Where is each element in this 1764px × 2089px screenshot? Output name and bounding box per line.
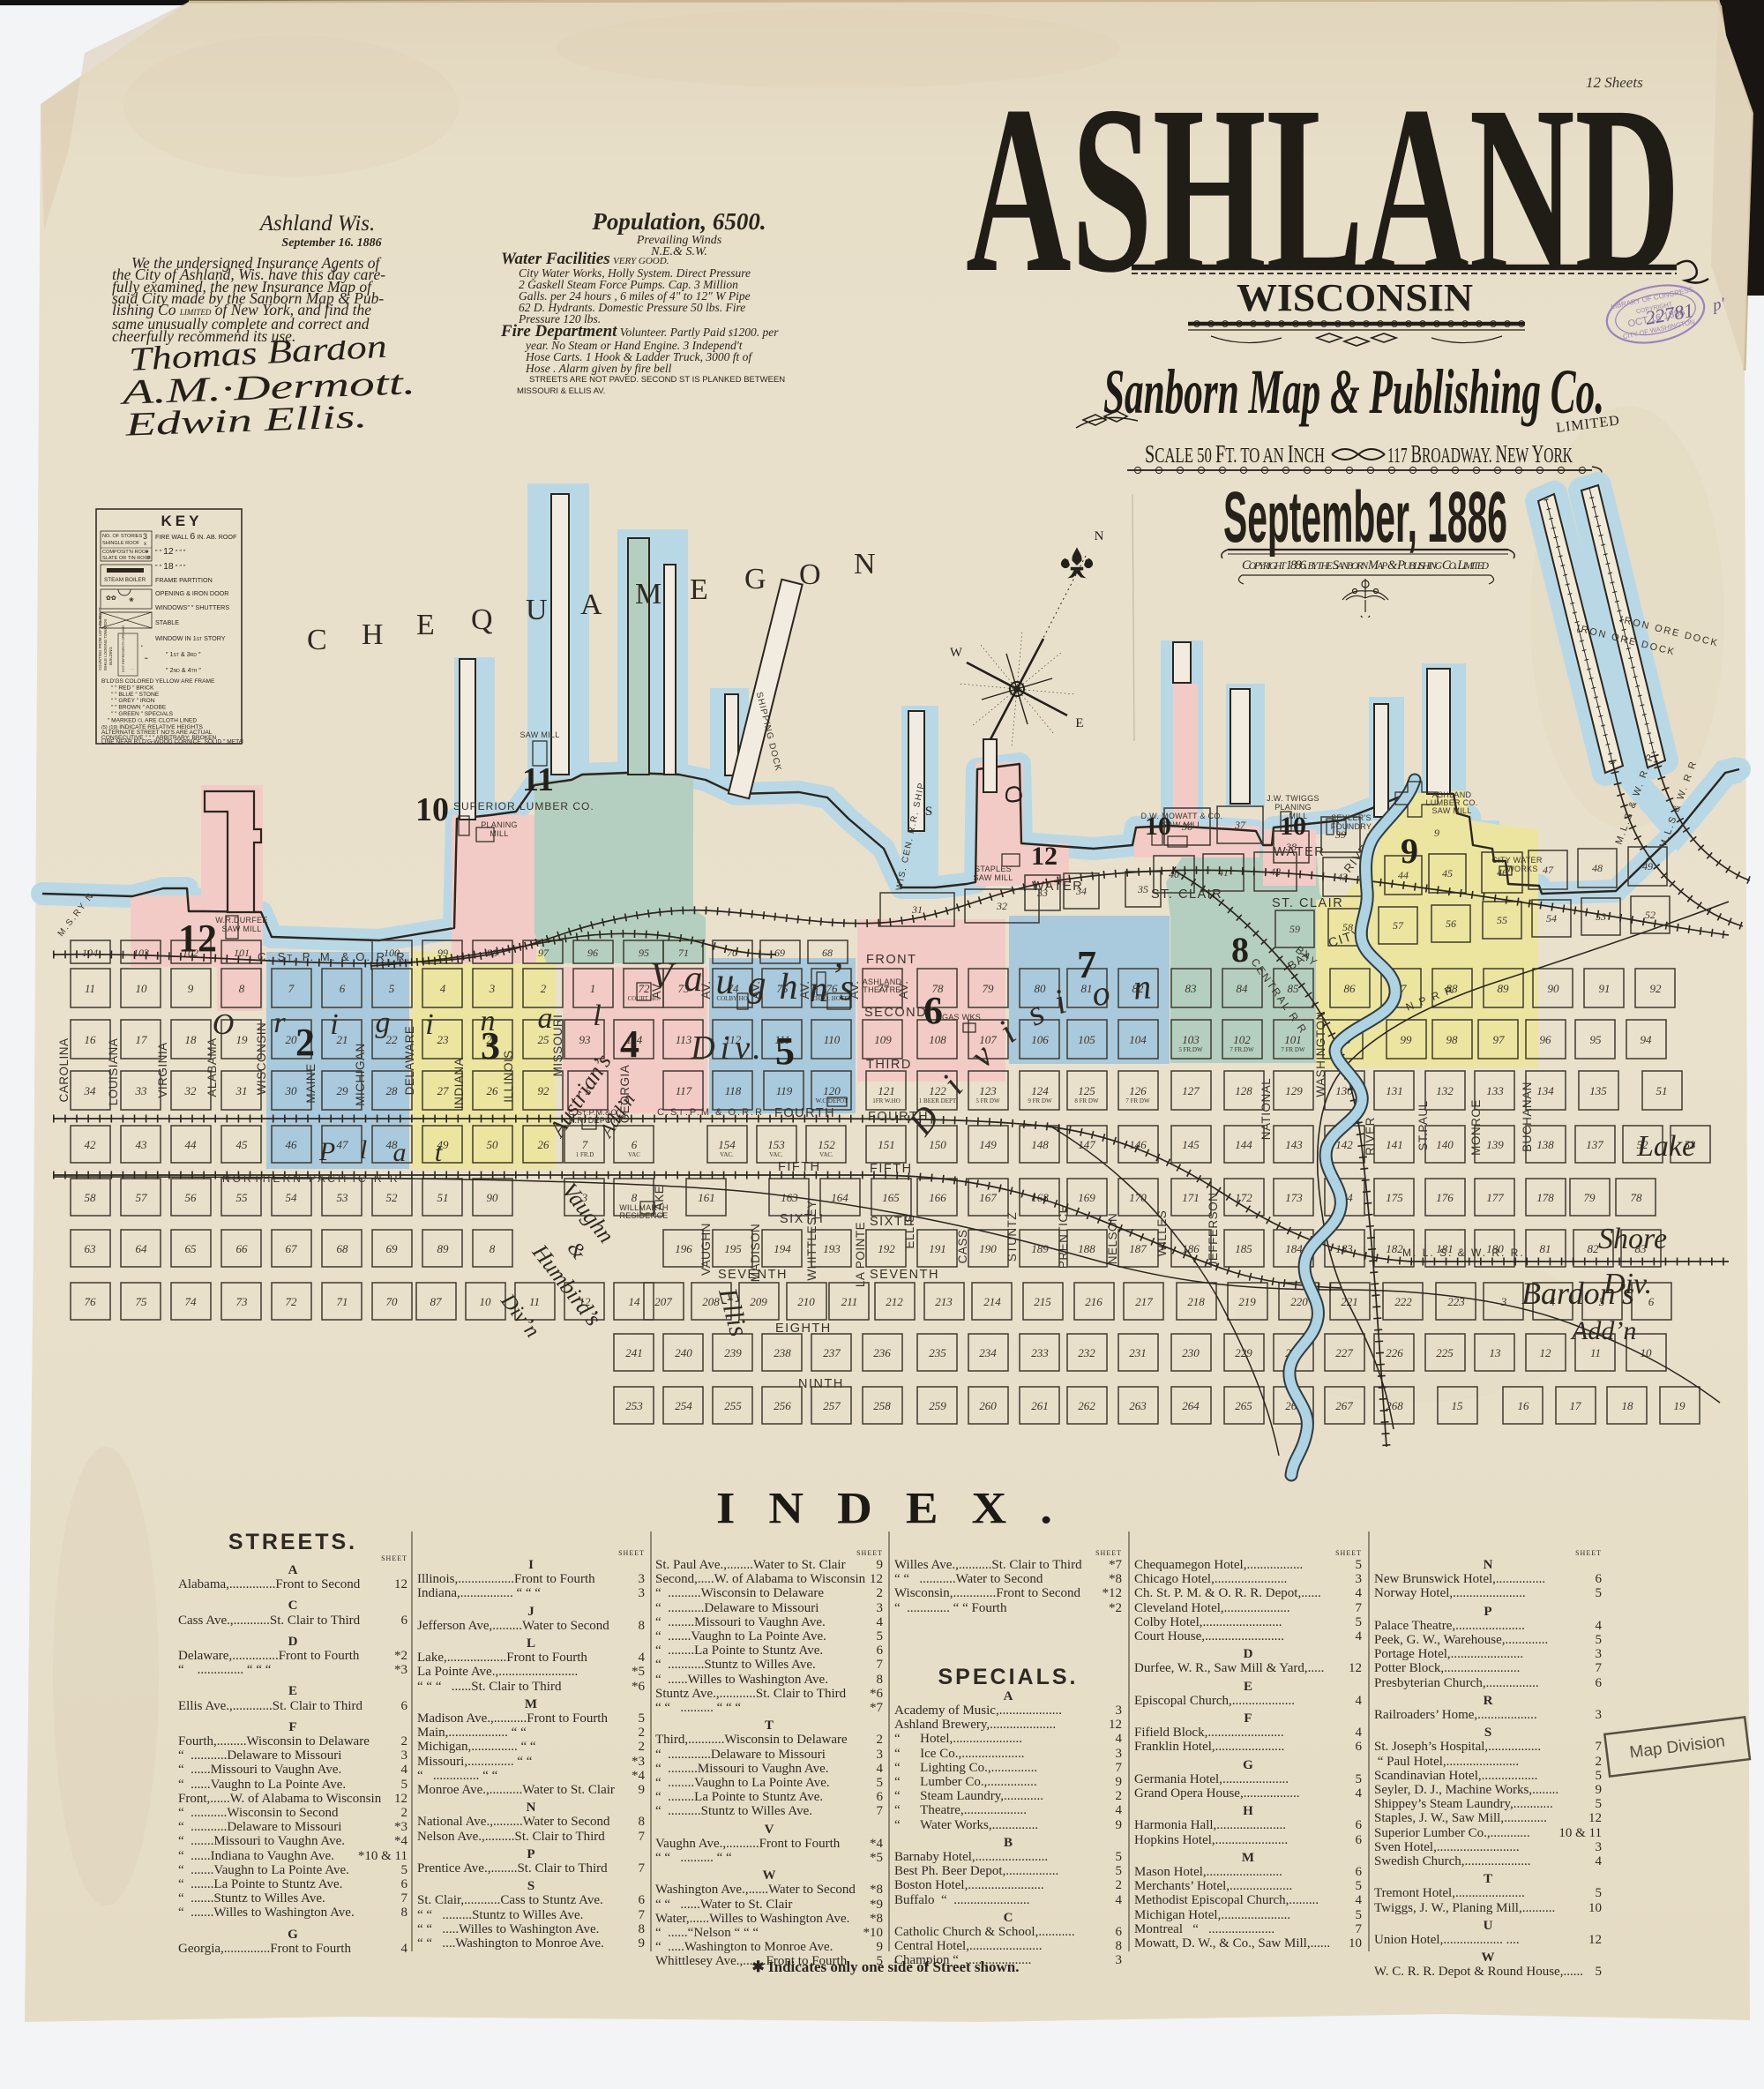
svg-text:Shore: Shore (1598, 1223, 1667, 1255)
svg-text:25: 25 (538, 1033, 550, 1046)
svg-text:LOUISIANA: LOUISIANA (107, 1038, 120, 1106)
svg-text:226: 226 (1386, 1346, 1403, 1359)
svg-text:NORTHERN PACIFIC R R: NORTHERN PACIFIC R R (222, 1172, 400, 1185)
svg-text:235: 235 (929, 1346, 946, 1359)
svg-text:10: 10 (480, 1295, 492, 1308)
svg-text:70: 70 (386, 1295, 399, 1308)
svg-text:176: 176 (1436, 1191, 1454, 1204)
svg-text:69: 69 (774, 947, 785, 959)
svg-text:SUPERIOR LUMBER CO.: SUPERIOR LUMBER CO. (453, 800, 594, 812)
svg-text:26: 26 (487, 1084, 499, 1097)
svg-text:264: 264 (1182, 1399, 1200, 1412)
svg-text:182: 182 (1386, 1242, 1403, 1255)
svg-text:FIFTH: FIFTH (778, 1160, 821, 1174)
svg-text:1: 1 (590, 982, 596, 995)
svg-text:MAINE: MAINE (304, 1063, 318, 1103)
svg-text:11: 11 (85, 982, 95, 995)
svg-text:a: a (684, 959, 703, 1000)
svg-text:&: & (563, 1237, 591, 1264)
svg-text:99: 99 (1401, 1033, 1413, 1046)
svg-text:101: 101 (234, 947, 250, 959)
svg-text:V: V (650, 956, 676, 997)
svg-text:48: 48 (1592, 862, 1603, 874)
svg-text:SECOND: SECOND (864, 1006, 927, 1020)
svg-text:45: 45 (1442, 867, 1453, 880)
svg-text:JEFFERSON: JEFFERSON (1207, 1193, 1220, 1268)
svg-text:u: u (716, 962, 735, 1002)
svg-text:Bardon’s: Bardon’s (1521, 1276, 1634, 1311)
svg-text:147: 147 (1078, 1138, 1095, 1151)
svg-text:3: 3 (1500, 1295, 1507, 1308)
svg-text:32: 32 (996, 900, 1007, 912)
svg-text:67: 67 (286, 1242, 298, 1255)
svg-text:SAW MILL: SAW MILL (1431, 806, 1471, 815)
svg-text:214: 214 (983, 1295, 1001, 1308)
svg-text:h: h (780, 967, 798, 1007)
svg-text:1 FR.D: 1 FR.D (576, 1151, 594, 1158)
svg-text:253: 253 (625, 1399, 643, 1412)
svg-text:NATIONAL: NATIONAL (1259, 1078, 1273, 1141)
svg-text:152: 152 (818, 1138, 835, 1151)
svg-text:7: 7 (582, 1138, 588, 1151)
svg-text:109: 109 (874, 1033, 892, 1046)
svg-text:8: 8 (239, 982, 245, 995)
svg-text:23: 23 (437, 1033, 450, 1046)
svg-text:19: 19 (236, 1033, 249, 1046)
svg-text:12: 12 (1031, 842, 1058, 871)
svg-text:104: 104 (82, 947, 98, 959)
svg-text:68: 68 (337, 1242, 349, 1255)
svg-text:52: 52 (1645, 909, 1656, 921)
svg-text:81: 81 (1540, 1242, 1551, 1255)
svg-text:149: 149 (979, 1138, 997, 1151)
svg-text:76: 76 (85, 1295, 97, 1308)
svg-text:212: 212 (886, 1295, 903, 1308)
svg-text:ST.PAUL: ST.PAUL (1416, 1100, 1430, 1150)
svg-text:71: 71 (678, 947, 689, 959)
svg-text:H: H (362, 618, 385, 651)
svg-text:42: 42 (85, 1138, 97, 1151)
svg-text:262: 262 (1078, 1399, 1095, 1412)
svg-text:113: 113 (676, 1033, 692, 1046)
svg-text:97: 97 (1493, 1033, 1506, 1046)
svg-text:196: 196 (675, 1242, 692, 1255)
svg-text:7: 7 (288, 982, 295, 995)
svg-text:175: 175 (1386, 1191, 1403, 1204)
svg-text:104: 104 (1129, 1033, 1147, 1046)
svg-text:240: 240 (675, 1346, 692, 1359)
svg-text:257: 257 (823, 1399, 841, 1412)
svg-text:52: 52 (386, 1191, 399, 1204)
svg-text:239: 239 (724, 1346, 742, 1359)
svg-text:BUCHANAN: BUCHANAN (1521, 1082, 1534, 1152)
svg-text:210: 210 (797, 1295, 815, 1308)
svg-text:232: 232 (1078, 1346, 1095, 1359)
svg-text:154: 154 (718, 1138, 736, 1151)
svg-text:6: 6 (923, 989, 943, 1032)
svg-text:166: 166 (929, 1191, 946, 1204)
svg-text:153: 153 (767, 1138, 785, 1151)
svg-text:259: 259 (929, 1399, 946, 1412)
svg-text:124: 124 (1031, 1084, 1049, 1097)
svg-text:S: S (925, 805, 932, 819)
svg-text:106: 106 (1031, 1033, 1049, 1046)
svg-text:C.ST.P.M & O.R.R: C.ST.P.M & O.R.R (657, 1107, 764, 1118)
svg-text:222: 222 (1394, 1295, 1412, 1308)
svg-text:56: 56 (185, 1191, 198, 1204)
svg-text:1 BEER DEPT: 1 BEER DEPT (919, 1097, 957, 1104)
svg-text:231: 231 (1129, 1346, 1147, 1359)
svg-text:133: 133 (1486, 1084, 1504, 1097)
svg-text:75: 75 (136, 1295, 148, 1308)
svg-text:16: 16 (1518, 1399, 1530, 1412)
svg-text:211: 211 (841, 1295, 858, 1308)
svg-text:l: l (593, 1000, 601, 1032)
svg-text:PRENTICE: PRENTICE (1057, 1205, 1070, 1269)
svg-text:W: W (950, 646, 963, 660)
svg-text:193: 193 (823, 1242, 841, 1255)
svg-text:58: 58 (85, 1191, 97, 1204)
svg-text:121: 121 (878, 1084, 895, 1097)
svg-text:3: 3 (489, 982, 496, 995)
svg-text:55: 55 (236, 1191, 249, 1204)
svg-text:236: 236 (873, 1346, 891, 1359)
svg-text:89: 89 (437, 1242, 450, 1255)
svg-text:57: 57 (1393, 919, 1404, 932)
svg-text:192: 192 (878, 1242, 895, 1255)
svg-text:50: 50 (487, 1138, 499, 1151)
svg-text:CAROLINA: CAROLINA (57, 1037, 71, 1102)
svg-text:63: 63 (85, 1242, 97, 1255)
svg-text:n: n (810, 970, 828, 1010)
svg-text:139: 139 (1486, 1138, 1504, 1151)
svg-text:145: 145 (1182, 1138, 1200, 1151)
svg-text:78: 78 (1631, 1191, 1643, 1204)
svg-text:GAS WKS: GAS WKS (942, 1013, 981, 1022)
svg-text:54: 54 (286, 1191, 298, 1204)
svg-text:10: 10 (1145, 812, 1171, 841)
svg-text:51: 51 (437, 1191, 449, 1204)
svg-text:n: n (1132, 966, 1153, 1007)
svg-text:173: 173 (1285, 1191, 1303, 1204)
svg-text:N: N (1095, 529, 1104, 543)
svg-text:EIGHTH: EIGHTH (775, 1322, 832, 1336)
svg-text:110: 110 (824, 1033, 841, 1046)
svg-text:135: 135 (1589, 1084, 1607, 1097)
svg-text:105: 105 (1078, 1033, 1095, 1046)
svg-text:30: 30 (285, 1084, 298, 1097)
svg-text:260: 260 (979, 1399, 997, 1412)
svg-text:144: 144 (1235, 1138, 1252, 1151)
svg-text:28: 28 (386, 1084, 399, 1097)
svg-text:g: g (376, 1007, 391, 1039)
svg-text:70: 70 (727, 947, 737, 959)
svg-text:265: 265 (1235, 1399, 1252, 1412)
svg-text:MICHIGAN: MICHIGAN (354, 1043, 367, 1106)
svg-text:43: 43 (136, 1138, 148, 1151)
svg-text:g: g (748, 964, 766, 1005)
svg-text:73: 73 (236, 1295, 249, 1308)
svg-text:229: 229 (1235, 1346, 1252, 1359)
svg-text:90: 90 (1548, 982, 1560, 995)
svg-text:INDIANA: INDIANA (452, 1058, 466, 1109)
svg-text:2: 2 (295, 1021, 315, 1064)
svg-text:79: 79 (983, 982, 995, 995)
svg-text:140: 140 (1436, 1138, 1454, 1151)
svg-text:31: 31 (235, 1084, 248, 1097)
svg-text:138: 138 (1536, 1138, 1554, 1151)
svg-text:71: 71 (337, 1295, 348, 1308)
svg-text:CASS: CASS (956, 1230, 969, 1264)
svg-text:i: i (425, 1008, 433, 1041)
svg-text:165: 165 (882, 1191, 900, 1204)
svg-text:234: 234 (979, 1346, 997, 1359)
svg-text:132: 132 (1436, 1084, 1454, 1097)
svg-text:220: 220 (1290, 1295, 1308, 1308)
svg-text:9: 9 (188, 982, 194, 995)
svg-text:Ellis: Ellis (713, 1284, 753, 1340)
svg-text:MISSOURI: MISSOURI (551, 1015, 564, 1077)
svg-text:N: N (854, 548, 878, 580)
svg-text:E: E (690, 573, 710, 606)
svg-text:195: 195 (724, 1242, 742, 1255)
svg-text:8: 8 (490, 1242, 496, 1255)
svg-text:103: 103 (1182, 1033, 1200, 1046)
svg-text:10: 10 (1280, 812, 1306, 841)
svg-text:190: 190 (979, 1242, 997, 1255)
svg-text:85: 85 (1288, 982, 1300, 995)
svg-text:45: 45 (236, 1138, 249, 1151)
svg-text:i: i (330, 1008, 338, 1041)
svg-text:ALABAMA: ALABAMA (206, 1037, 219, 1097)
svg-text:89: 89 (1498, 982, 1510, 995)
svg-text:E: E (416, 609, 437, 641)
svg-text:127: 127 (1182, 1084, 1200, 1097)
svg-text:120: 120 (823, 1084, 841, 1097)
svg-text:216: 216 (1085, 1295, 1102, 1308)
svg-text:FOUNDRY: FOUNDRY (1331, 822, 1372, 831)
svg-text:14: 14 (629, 1295, 641, 1308)
svg-text:90: 90 (487, 1191, 499, 1204)
svg-text:VAC.: VAC. (720, 1151, 734, 1158)
svg-text:8: 8 (632, 1191, 638, 1204)
svg-text:J.W. TWIGGS: J.W. TWIGGS (1267, 794, 1319, 803)
svg-text:125: 125 (1078, 1084, 1095, 1097)
svg-text:18: 18 (1622, 1399, 1634, 1412)
svg-text:WORKS: WORKS (1506, 865, 1538, 873)
svg-text:9 FR DW: 9 FR DW (1028, 1097, 1052, 1104)
svg-text:126: 126 (1129, 1084, 1147, 1097)
svg-text:255: 255 (724, 1399, 742, 1412)
svg-text:194: 194 (774, 1242, 791, 1255)
svg-text:n: n (481, 1005, 496, 1037)
svg-text:4: 4 (440, 982, 446, 995)
svg-text:Map Division: Map Division (1628, 1732, 1726, 1762)
svg-text:241: 241 (625, 1346, 643, 1359)
svg-text:188: 188 (1078, 1242, 1095, 1255)
svg-text:233: 233 (1031, 1346, 1049, 1359)
svg-text:31: 31 (911, 903, 923, 916)
svg-text:238: 238 (774, 1346, 791, 1359)
svg-text:17: 17 (136, 1033, 148, 1046)
svg-text:18: 18 (185, 1033, 198, 1046)
svg-text:Div.: Div. (690, 1030, 766, 1067)
svg-text:RESIDENCE: RESIDENCE (619, 1211, 668, 1220)
svg-text:SIXTH: SIXTH (780, 1212, 824, 1226)
svg-text:131: 131 (1386, 1084, 1403, 1097)
svg-text:217: 217 (1135, 1295, 1153, 1308)
svg-text:10: 10 (136, 982, 148, 995)
svg-text:M. L. S. & W. R. R.: M. L. S. & W. R. R. (1402, 1247, 1525, 1259)
svg-text:122: 122 (929, 1084, 946, 1097)
svg-text:2: 2 (541, 982, 547, 995)
svg-text:69: 69 (386, 1242, 399, 1255)
svg-text:143: 143 (1285, 1138, 1303, 1151)
svg-text:227: 227 (1335, 1346, 1353, 1359)
svg-text:207: 207 (654, 1295, 672, 1308)
svg-text:102: 102 (1233, 1033, 1251, 1046)
svg-text:128: 128 (1235, 1084, 1252, 1097)
svg-text:53: 53 (337, 1191, 349, 1204)
svg-text:237: 237 (823, 1346, 841, 1359)
svg-text:209: 209 (750, 1295, 767, 1308)
svg-text:169: 169 (1078, 1191, 1095, 1204)
svg-text:9: 9 (1401, 831, 1418, 871)
svg-text:7 FR.DW: 7 FR.DW (1230, 1046, 1254, 1053)
svg-text:Lake: Lake (1636, 1130, 1695, 1163)
svg-text:123: 123 (979, 1084, 997, 1097)
svg-text:VAC.: VAC. (819, 1151, 833, 1158)
svg-text:6: 6 (340, 982, 346, 995)
svg-text:32: 32 (184, 1084, 198, 1097)
svg-text:E: E (1075, 716, 1083, 730)
svg-text:FRONT: FRONT (866, 953, 916, 967)
svg-text:11: 11 (522, 761, 554, 798)
svg-text:C: C (307, 624, 329, 656)
svg-text:Vaughn: Vaughn (557, 1178, 619, 1247)
svg-text:MONROE: MONROE (1469, 1099, 1483, 1156)
svg-text:83: 83 (1185, 982, 1198, 995)
svg-text:95: 95 (639, 947, 649, 959)
svg-text:WATER: WATER (1274, 845, 1325, 859)
svg-text:9: 9 (1434, 827, 1439, 839)
svg-text:185: 185 (1235, 1242, 1252, 1255)
svg-text:CITY WATER: CITY WATER (1491, 856, 1543, 865)
svg-text:13: 13 (1490, 1346, 1502, 1359)
svg-text:256: 256 (774, 1399, 791, 1412)
svg-text:64: 64 (136, 1242, 148, 1255)
svg-text:96: 96 (1540, 1033, 1552, 1046)
svg-text:107: 107 (979, 1033, 997, 1046)
svg-text:NELSON: NELSON (1106, 1213, 1119, 1265)
svg-text:56: 56 (1446, 917, 1456, 930)
svg-text:215: 215 (1034, 1295, 1051, 1308)
svg-text:44: 44 (185, 1138, 198, 1151)
svg-text:r: r (273, 1007, 286, 1039)
svg-text:119: 119 (776, 1084, 793, 1097)
svg-text:5 FR DW: 5 FR DW (975, 1097, 1000, 1104)
svg-text:219: 219 (1238, 1295, 1256, 1308)
svg-text:191: 191 (929, 1242, 946, 1255)
svg-text:27: 27 (437, 1084, 450, 1097)
svg-text:7 FR DW: 7 FR DW (1125, 1097, 1150, 1104)
svg-text:93: 93 (579, 1033, 592, 1046)
svg-text:SAW MILL: SAW MILL (973, 873, 1013, 882)
svg-text:187: 187 (1129, 1242, 1147, 1255)
svg-text:10: 10 (415, 791, 449, 828)
svg-text:SAW MILL: SAW MILL (519, 730, 559, 739)
svg-text:12: 12 (178, 917, 217, 960)
svg-text:263: 263 (1129, 1399, 1147, 1412)
svg-text:47: 47 (1543, 864, 1554, 876)
svg-text:VIRGINIA: VIRGINIA (156, 1042, 169, 1097)
svg-text:SAW MILL: SAW MILL (221, 925, 261, 933)
svg-text:79: 79 (1584, 1191, 1596, 1204)
svg-text:ILLINOIS: ILLINOIS (502, 1050, 515, 1103)
svg-text:59: 59 (1289, 923, 1300, 935)
svg-text:l: l (360, 1135, 367, 1164)
svg-text:82: 82 (1588, 1242, 1600, 1255)
svg-text:171: 171 (1182, 1191, 1200, 1204)
svg-text:225: 225 (1436, 1346, 1454, 1359)
svg-text:267: 267 (1335, 1399, 1353, 1412)
svg-text:Q: Q (471, 603, 495, 636)
svg-text:44: 44 (1398, 869, 1409, 881)
svg-text:SIXTH: SIXTH (870, 1215, 914, 1229)
svg-text:U: U (526, 594, 549, 626)
svg-text:VAC.: VAC. (769, 1151, 783, 1158)
svg-text:DELAWARE: DELAWARE (403, 1026, 416, 1096)
svg-text:151: 151 (878, 1138, 895, 1151)
svg-text:80: 80 (1035, 982, 1047, 995)
svg-text:5: 5 (775, 1030, 795, 1073)
svg-text:SEYLER'S: SEYLER'S (1331, 813, 1372, 822)
svg-text:a: a (393, 1138, 407, 1167)
svg-text:29: 29 (337, 1084, 349, 1097)
svg-text:12: 12 (1540, 1346, 1552, 1359)
svg-text:184: 184 (1285, 1242, 1303, 1255)
svg-text:34: 34 (84, 1084, 97, 1097)
svg-text:LA POINTE: LA POINTE (854, 1222, 867, 1287)
svg-text:11: 11 (529, 1295, 540, 1308)
svg-text:W.R.DURFEE: W.R.DURFEE (215, 916, 268, 925)
svg-text:8: 8 (1231, 930, 1249, 970)
svg-text:THEATRE: THEATRE (863, 985, 901, 994)
svg-text:55: 55 (1497, 914, 1507, 926)
svg-text:129: 129 (1285, 1084, 1303, 1097)
svg-text:WISCONSIN: WISCONSIN (255, 1022, 268, 1096)
svg-text:O: O (213, 1008, 235, 1041)
svg-text:230: 230 (1182, 1346, 1200, 1359)
svg-text:108: 108 (929, 1033, 946, 1046)
svg-text:Add’n: Add’n (1570, 1316, 1636, 1345)
svg-text:46: 46 (286, 1138, 298, 1151)
svg-text:8 FR DW: 8 FR DW (1074, 1097, 1099, 1104)
svg-text:167: 167 (979, 1191, 997, 1204)
svg-text:35: 35 (1137, 883, 1148, 895)
svg-text:ST. CLAIR: ST. CLAIR (1272, 896, 1343, 910)
svg-text:84: 84 (1237, 982, 1249, 995)
svg-text:117: 117 (676, 1084, 692, 1097)
svg-text:11: 11 (1590, 1346, 1601, 1359)
svg-text:94: 94 (1641, 1033, 1653, 1046)
svg-text:42: 42 (1270, 865, 1281, 878)
svg-text:VAC: VAC (628, 1151, 640, 1158)
svg-text:66: 66 (236, 1242, 249, 1255)
svg-text:5 FR.DW: 5 FR.DW (1178, 1046, 1203, 1053)
svg-text:SEVENTH: SEVENTH (870, 1268, 939, 1282)
svg-text:47: 47 (337, 1138, 349, 1151)
